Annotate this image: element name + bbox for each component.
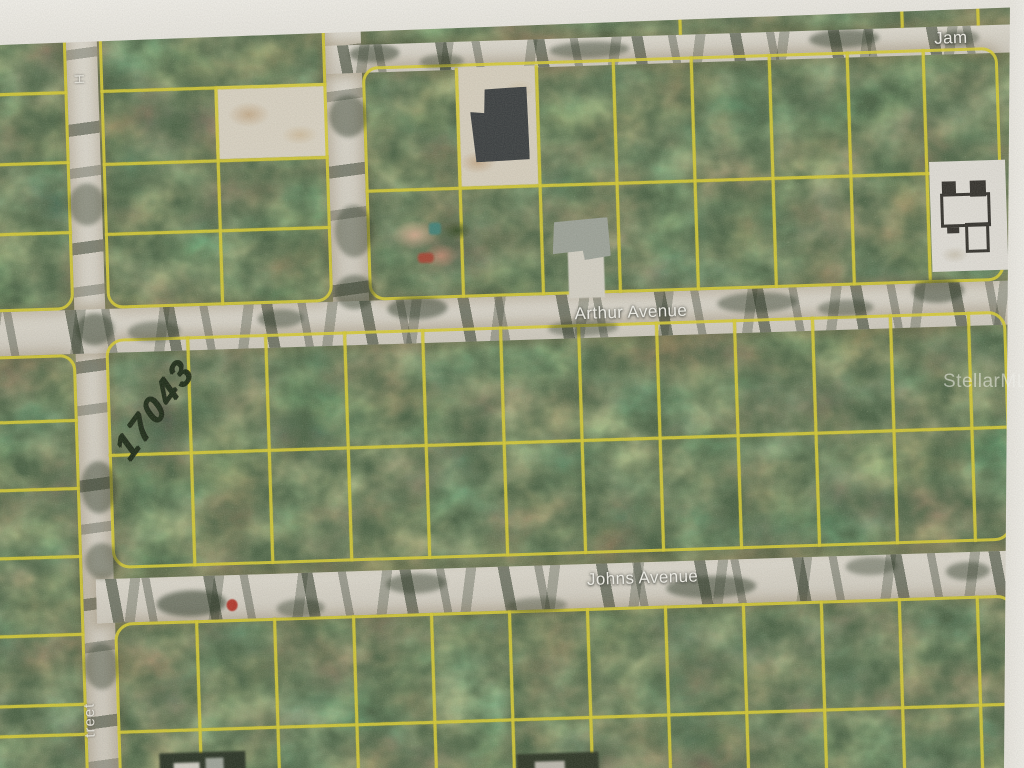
pool-dot: [429, 222, 441, 234]
parcel-block: [0, 0, 74, 315]
road-label-left-street-top: H: [71, 74, 87, 86]
aerial-parcel-map-photo: Arthur Avenue Johns Avenue Jam H treet 1…: [0, 0, 1024, 768]
map-content: Arthur Avenue Johns Avenue Jam H treet 1…: [0, 0, 1024, 768]
house-trees-lot: [388, 211, 475, 276]
parcel-block: [97, 0, 333, 309]
road-label-arthur-avenue: Arthur Avenue: [574, 301, 687, 325]
stellarmls-watermark: StellarMLS: [943, 371, 1024, 393]
red-roof-patch: [418, 253, 434, 263]
sketch-lot-white: [929, 160, 1008, 272]
bottom-structure-2: [516, 752, 600, 768]
road-label-left-street-bottom: treet: [81, 702, 99, 738]
road-label-johns-avenue: Johns Avenue: [587, 566, 699, 589]
parcel-block: [114, 595, 1022, 768]
road-label-top-avenue-partial: Jam: [934, 28, 968, 49]
bottom-structure-1: [159, 751, 247, 768]
